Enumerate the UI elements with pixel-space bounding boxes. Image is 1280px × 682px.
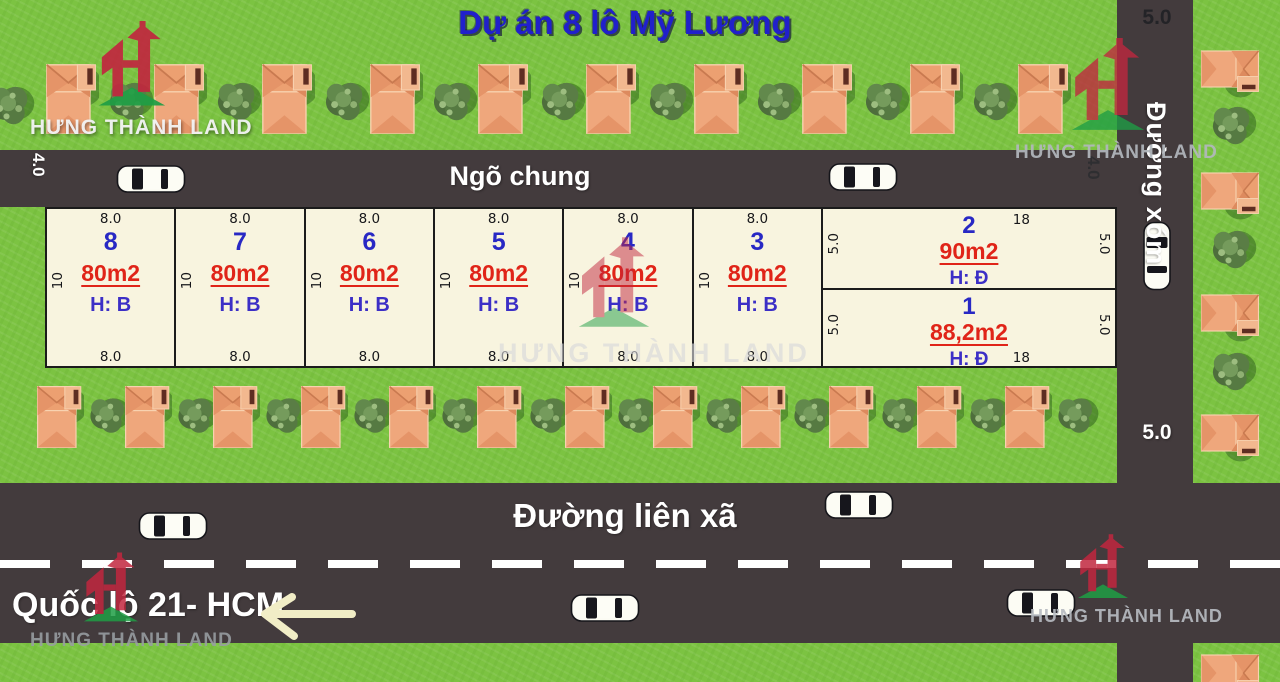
plot-1: 5.0 5.0 1 88,2m2 H: Đ 18 — [823, 290, 1115, 369]
plot-3-area: 80m2 — [728, 262, 787, 285]
plot-3-front-dim: 8.0 — [694, 211, 821, 227]
plot-6-front-dim: 8.0 — [306, 211, 433, 227]
house-icon — [1200, 166, 1260, 222]
house-icon — [1200, 648, 1260, 682]
plot-8-front-dim: 8.0 — [47, 211, 174, 227]
plot-8-depth-dim: 10 — [50, 272, 66, 289]
road-centerline — [0, 560, 1280, 568]
plot-2-long-dim: 18 — [1013, 212, 1030, 228]
hamlet-road-label: Đường xóm — [1140, 102, 1171, 265]
plot-1-depth-left-dim: 5.0 — [826, 314, 842, 335]
tree-icon — [436, 392, 484, 440]
plot-6-area: 80m2 — [340, 262, 399, 285]
house-icon — [1004, 382, 1052, 452]
plot-5-direction: H: B — [435, 295, 562, 315]
house-icon — [153, 60, 207, 138]
commune-road-label: Đường liên xã — [0, 497, 1250, 535]
tree-icon — [0, 80, 36, 132]
tree-icon — [103, 76, 155, 128]
tree-icon — [319, 76, 371, 128]
tree-icon — [1206, 224, 1258, 276]
tree-icon — [859, 76, 911, 128]
plot-8-direction: H: B — [47, 295, 174, 315]
plot-2-area: 90m2 — [940, 240, 999, 263]
plot-5: 8.0 10 5 80m2 H: B 8.0 — [435, 209, 564, 366]
house-icon — [476, 382, 524, 452]
house-icon — [828, 382, 876, 452]
tree-icon — [524, 392, 572, 440]
tree-icon — [1206, 346, 1258, 398]
tree-icon — [643, 76, 695, 128]
house-icon — [212, 382, 260, 452]
left-arrow-icon — [246, 590, 361, 642]
highway-label: Quốc lộ 21- HCM — [12, 586, 284, 625]
plot-7-front-dim: 8.0 — [176, 211, 303, 227]
plot-5-number: 5 — [435, 230, 562, 255]
plot-2-number: 2 — [823, 214, 1115, 238]
hamlet-width-label-top: 5.0 — [1128, 6, 1186, 30]
plot-1-number: 1 — [823, 295, 1115, 319]
tree-icon — [172, 392, 220, 440]
plot-7-back-dim: 8.0 — [176, 349, 303, 365]
plot-5-area: 80m2 — [469, 262, 528, 285]
house-icon — [261, 60, 315, 138]
plot-4-front-dim: 8.0 — [564, 211, 691, 227]
plot-8-back-dim: 8.0 — [47, 349, 174, 365]
plot-2: 18 5.0 5.0 2 90m2 H: Đ — [823, 209, 1115, 290]
house-icon — [477, 60, 531, 138]
house-icon — [740, 382, 788, 452]
plot-5-depth-dim: 10 — [438, 272, 454, 289]
plot-8-number: 8 — [47, 230, 174, 255]
plot-6-direction: H: B — [306, 295, 433, 315]
house-icon — [693, 60, 747, 138]
house-icon — [45, 60, 99, 138]
plot-2-depth-right-dim: 5.0 — [1096, 233, 1112, 254]
plot-7-direction: H: B — [176, 295, 303, 315]
plot-7-number: 7 — [176, 230, 303, 255]
house-icon — [1017, 60, 1071, 138]
house-icon — [300, 382, 348, 452]
tree-icon — [348, 392, 396, 440]
house-icon — [1200, 408, 1260, 464]
plot-4-number: 4 — [564, 230, 691, 255]
plot-4-back-dim: 8.0 — [564, 349, 691, 365]
plot-6-number: 6 — [306, 230, 433, 255]
plot-4-depth-dim: 10 — [567, 272, 583, 289]
plot-4-direction: H: B — [564, 295, 691, 315]
tree-icon — [211, 76, 263, 128]
plot-5-front-dim: 8.0 — [435, 211, 562, 227]
plot-5-back-dim: 8.0 — [435, 349, 562, 365]
tree-icon — [612, 392, 660, 440]
plot-3-depth-dim: 10 — [697, 272, 713, 289]
house-icon — [652, 382, 700, 452]
plot-7: 8.0 10 7 80m2 H: B 8.0 — [176, 209, 305, 366]
house-icon — [1200, 44, 1260, 100]
brand-watermark-text: HƯNG THÀNH LAND — [30, 116, 253, 140]
tree-icon — [260, 392, 308, 440]
tree-icon — [1206, 100, 1258, 152]
plot-8-area: 80m2 — [81, 262, 140, 285]
tree-icon — [876, 392, 924, 440]
plot-4: 8.0 10 4 80m2 H: B 8.0 — [564, 209, 693, 366]
plot-6: 8.0 10 6 80m2 H: B 8.0 — [306, 209, 435, 366]
plot-1-depth-right-dim: 5.0 — [1096, 314, 1112, 335]
plot-3-number: 3 — [694, 230, 821, 255]
tree-icon — [1052, 392, 1100, 440]
house-icon — [1200, 288, 1260, 344]
project-title: Dự án 8 lô Mỹ Lương — [0, 4, 1250, 42]
tree-icon — [535, 76, 587, 128]
house-icon — [909, 60, 963, 138]
house-icon — [585, 60, 639, 138]
plot-6-back-dim: 8.0 — [306, 349, 433, 365]
tree-icon — [788, 392, 836, 440]
house-icon — [801, 60, 855, 138]
alley-width-label-left: 4.0 — [28, 153, 48, 177]
plot-1-long-dim: 18 — [1013, 350, 1030, 366]
plot-2-1-group: 18 5.0 5.0 2 90m2 H: Đ 5.0 5.0 1 88,2m2 … — [823, 209, 1115, 366]
alley-width-label-right: 4.0 — [1083, 156, 1103, 180]
plot-6-depth-dim: 10 — [309, 272, 325, 289]
plot-8: 8.0 10 8 80m2 H: B 8.0 — [47, 209, 176, 366]
plot-2-depth-left-dim: 5.0 — [826, 233, 842, 254]
alley-road-label: Ngõ chung — [360, 161, 680, 192]
plot-1-area: 88,2m2 — [930, 321, 1008, 344]
plot-3-direction: H: B — [694, 295, 821, 315]
house-icon — [916, 382, 964, 452]
plot-block: 8.0 10 8 80m2 H: B 8.0 8.0 10 7 80m2 H: … — [45, 207, 1117, 368]
plot-7-area: 80m2 — [211, 262, 270, 285]
plot-3-back-dim: 8.0 — [694, 349, 821, 365]
site-plan-canvas: Dự án 8 lô Mỹ Lương Ngõ chung 4.0 4.0 5.… — [0, 0, 1280, 682]
plot-1-direction: H: Đ — [823, 350, 1115, 369]
hamlet-width-label-mid: 5.0 — [1128, 421, 1186, 445]
tree-icon — [427, 76, 479, 128]
plot-3: 8.0 10 3 80m2 H: B 8.0 — [694, 209, 823, 366]
house-icon — [124, 382, 172, 452]
tree-icon — [967, 76, 1019, 128]
house-icon — [36, 382, 84, 452]
tree-icon — [84, 392, 132, 440]
plot-4-area: 80m2 — [599, 262, 658, 285]
plot-2-direction: H: Đ — [823, 269, 1115, 288]
tree-icon — [964, 392, 1012, 440]
house-icon — [388, 382, 436, 452]
house-icon — [369, 60, 423, 138]
house-icon — [564, 382, 612, 452]
tree-icon — [751, 76, 803, 128]
tree-icon — [700, 392, 748, 440]
plot-7-depth-dim: 10 — [179, 272, 195, 289]
